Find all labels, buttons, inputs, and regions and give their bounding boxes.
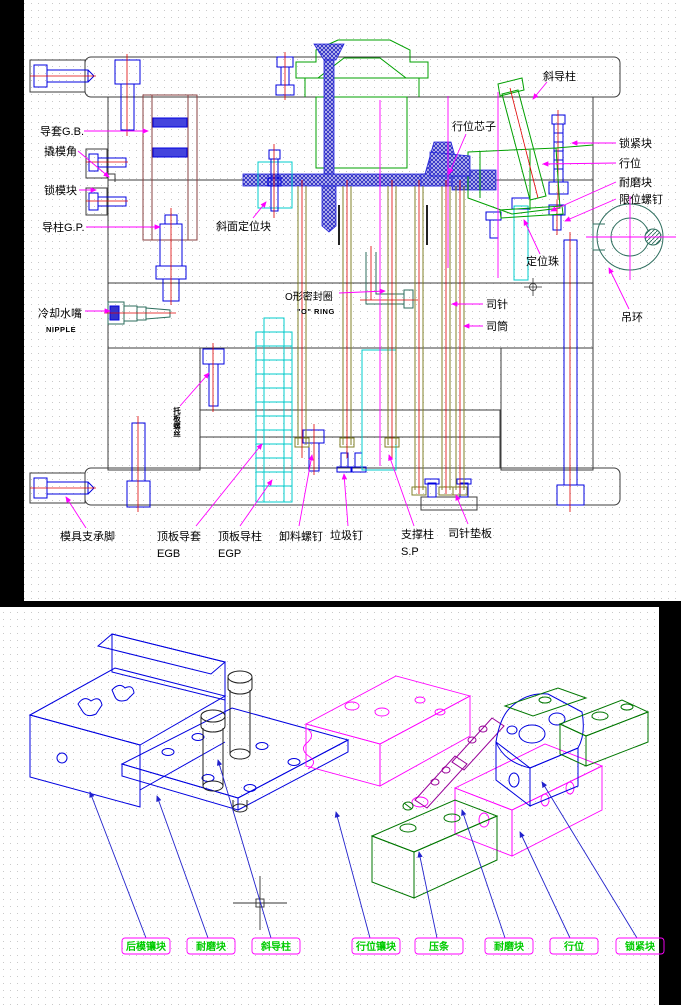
label-nipple-en: NIPPLE bbox=[46, 325, 76, 334]
label-sp: S.P bbox=[401, 546, 419, 558]
label-ejector-guide-bushing: 顶板导套 bbox=[157, 529, 201, 543]
label-press-strip: 压条 bbox=[429, 940, 450, 953]
mold-drawing-svg: 导套G.B. 撬模角 锁模块 导柱G.P. 斜面定位块 冷却水嘴 NIPPLE … bbox=[0, 0, 681, 1005]
cad-canvas: 导套G.B. 撬模角 锁模块 导柱G.P. 斜面定位块 冷却水嘴 NIPPLE … bbox=[0, 0, 681, 1005]
label-rear-insert: 后模镶块 bbox=[126, 940, 167, 953]
label-wear-block: 耐磨块 bbox=[619, 176, 652, 189]
label-wear-block-right: 耐磨块 bbox=[494, 940, 525, 953]
label-stripper-screw: 卸料螺钉 bbox=[279, 529, 323, 543]
label-locating-ball: 定位珠 bbox=[526, 254, 559, 268]
label-o-ring-en: "O" RING bbox=[297, 307, 335, 316]
label-o-ring: O形密封圈 bbox=[285, 290, 333, 303]
label-cooling-nipple: 冷却水嘴 bbox=[38, 307, 82, 320]
label-stop-pin: 垃圾钉 bbox=[330, 528, 363, 542]
label-angle-pin-3d: 斜导柱 bbox=[260, 940, 291, 953]
label-egb: EGB bbox=[157, 548, 180, 560]
label-slide-3d: 行位 bbox=[563, 940, 584, 953]
label-guide-pin: 导柱G.P. bbox=[42, 220, 85, 234]
label-sleeve: 司筒 bbox=[486, 319, 508, 333]
label-slide-core: 行位芯子 bbox=[452, 119, 496, 133]
label-slide-insert: 行位镶块 bbox=[355, 940, 397, 953]
label-taper-locating-block: 斜面定位块 bbox=[216, 219, 271, 233]
label-angle-pin: 斜导柱 bbox=[543, 69, 576, 83]
label-sleeve-pin: 司针 bbox=[486, 297, 508, 311]
label-vertical-note: 托板螺丝 bbox=[172, 406, 181, 438]
label-support-pillar: 支撑柱 bbox=[401, 527, 434, 541]
label-limit-screw: 限位螺钉 bbox=[619, 192, 663, 206]
label-slide: 行位 bbox=[619, 156, 641, 170]
label-pry-slot: 撬模角 bbox=[44, 144, 77, 158]
top-sheet bbox=[24, 0, 681, 601]
label-locking-block: 锁紧块 bbox=[619, 136, 652, 150]
label-locking-block-3d: 锁紧块 bbox=[625, 940, 656, 953]
label-egp: EGP bbox=[218, 548, 241, 560]
bottom-sheet bbox=[0, 607, 659, 1005]
label-support-foot: 模具支承脚 bbox=[60, 529, 115, 543]
label-lifting-ring: 吊环 bbox=[621, 311, 643, 324]
label-wear-block-left: 耐磨块 bbox=[196, 940, 227, 953]
label-sleeve-pin-plate: 司针垫板 bbox=[448, 526, 492, 540]
label-guide-bushing: 导套G.B. bbox=[40, 125, 84, 138]
label-ejector-guide-pin: 顶板导柱 bbox=[218, 529, 262, 543]
label-mold-lock-block: 锁模块 bbox=[44, 183, 77, 197]
